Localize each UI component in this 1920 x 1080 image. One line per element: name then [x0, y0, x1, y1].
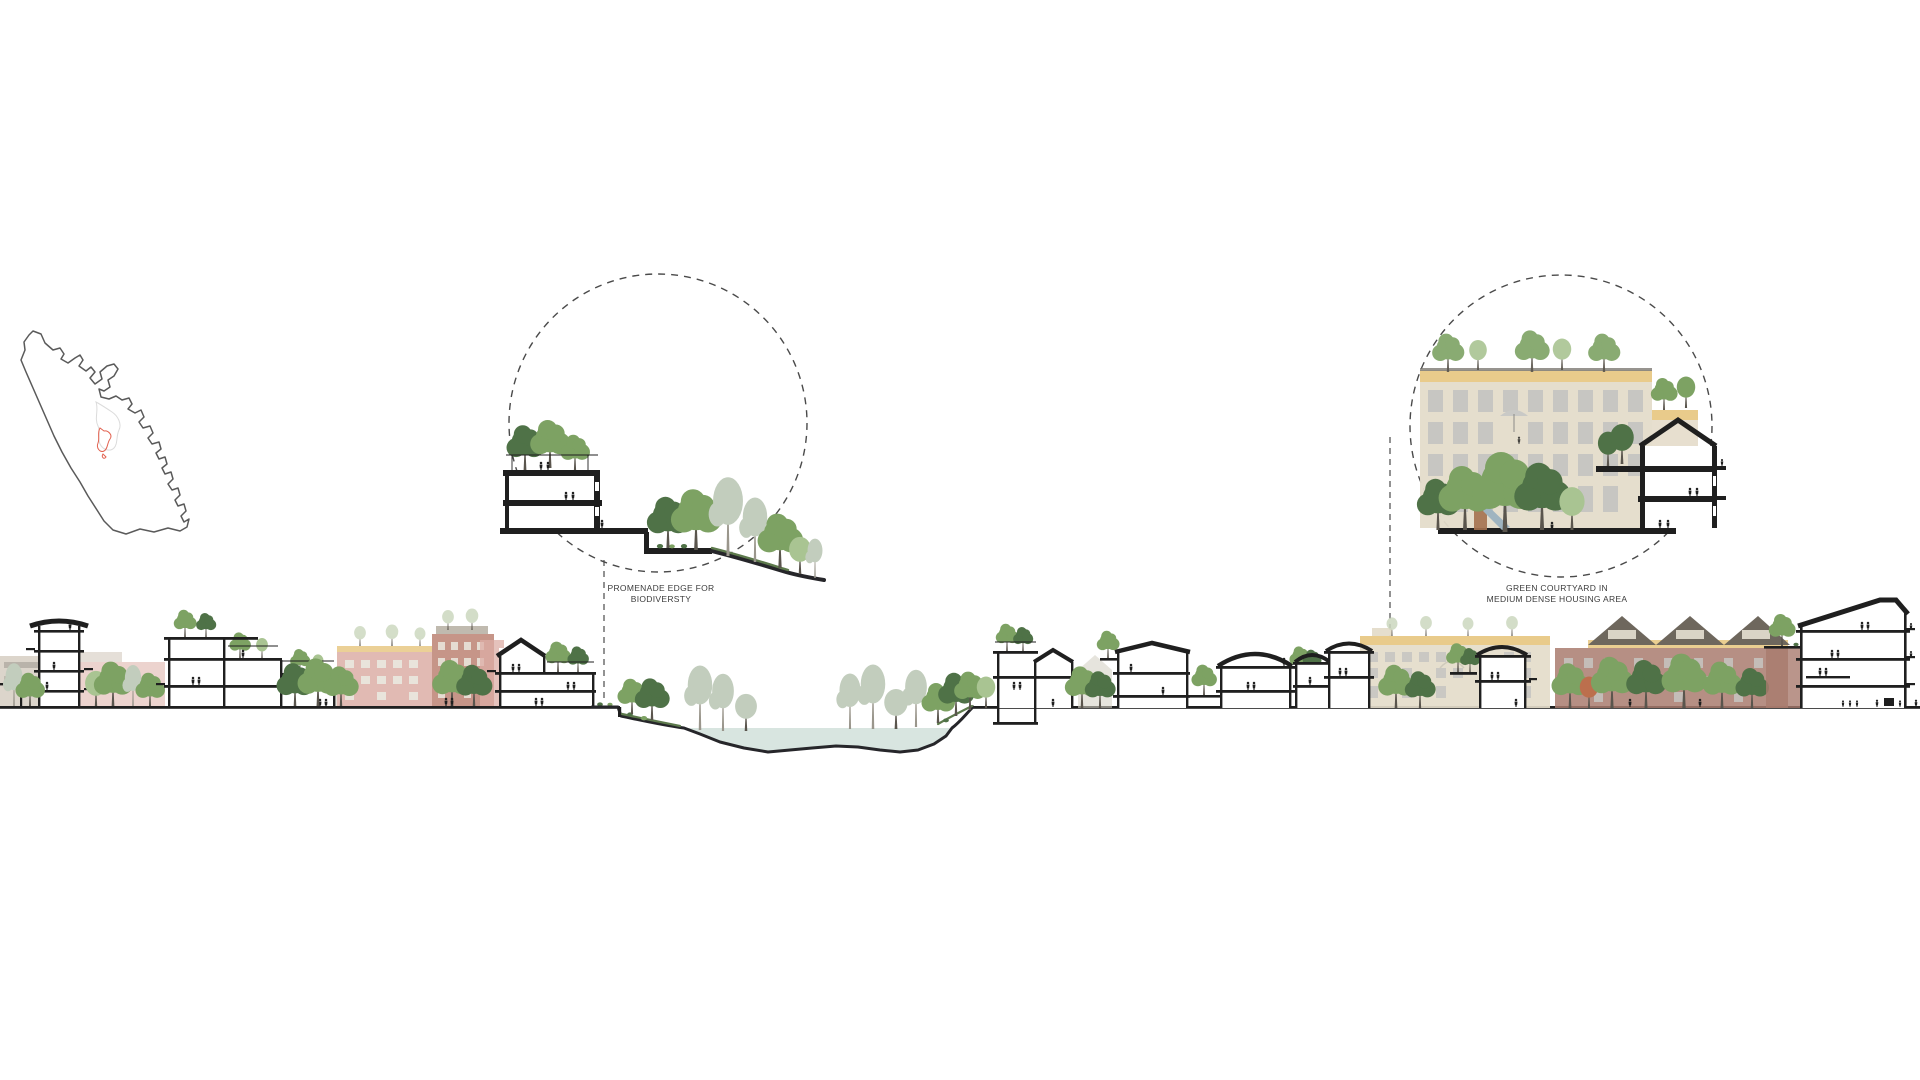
- section-diagram-canvas: [0, 0, 1920, 1080]
- courtyard-detail-drawing: [1417, 330, 1726, 534]
- map-boundary: [21, 331, 189, 534]
- promenade-label-line1: PROMENADE EDGE FOR: [586, 583, 736, 594]
- ground-line-left: [0, 706, 620, 709]
- brick-terraced-housing: [1552, 616, 1790, 708]
- section-building-far-right: [1764, 600, 1917, 708]
- section-townhouses: [1097, 631, 1363, 708]
- valley: [592, 665, 995, 752]
- promenade-label-line2: BIODIVERSTY: [586, 594, 736, 605]
- courtyard-label: GREEN COURTYARD IN MEDIUM DENSE HOUSING …: [1482, 583, 1632, 605]
- detail-circle-left: [500, 274, 824, 580]
- detail-circle-right: [1410, 275, 1726, 577]
- courtyard-label-line1: GREEN COURTYARD IN: [1482, 583, 1632, 594]
- section-building-basement: [993, 624, 1077, 725]
- courtyard-label-line2: MEDIUM DENSE HOUSING AREA: [1482, 594, 1632, 605]
- section-building-arch-left: [1324, 644, 1374, 709]
- location-map: [21, 331, 189, 534]
- diagram-stage: PROMENADE EDGE FOR BIODIVERSTY GREEN COU…: [0, 0, 1920, 1080]
- main-section: [0, 600, 1920, 752]
- section-building-promenade: [487, 640, 596, 708]
- promenade-label: PROMENADE EDGE FOR BIODIVERSTY: [586, 583, 736, 605]
- promenade-detail-drawing: [500, 420, 824, 580]
